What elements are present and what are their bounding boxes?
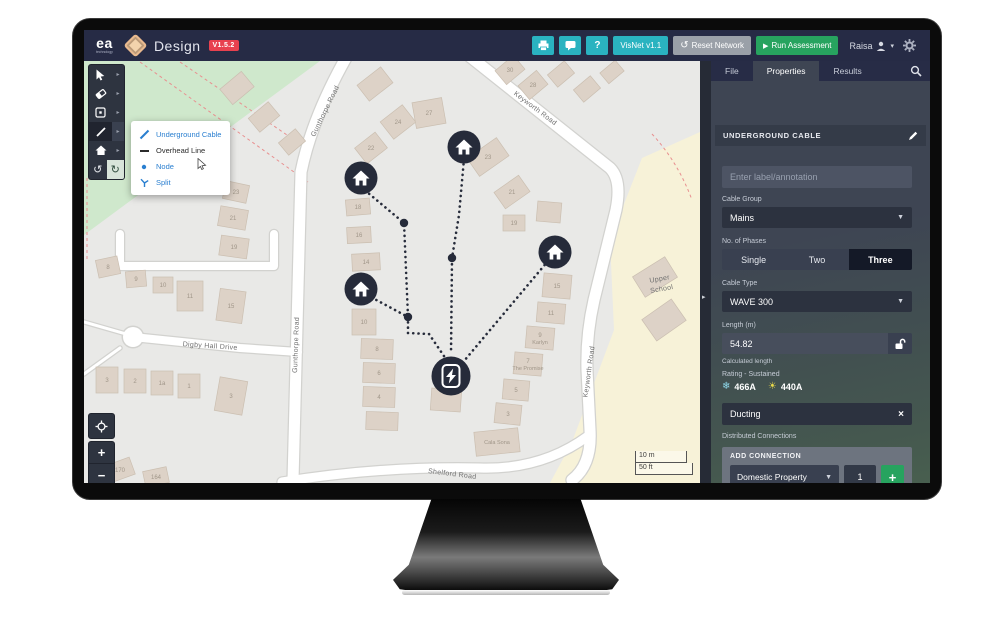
building: Cala Sona [474, 428, 520, 456]
app-topbar: ea technology Design V1.5.2 ? [84, 30, 930, 61]
building [536, 201, 562, 223]
building-number: 24 [395, 120, 402, 126]
zoom-control: + − [88, 441, 115, 483]
length-label: Length (m) [722, 322, 912, 329]
menu-item-underground-cable[interactable]: Underground Cable [131, 126, 230, 142]
building-footprint [600, 61, 624, 84]
plus-icon: + [889, 470, 897, 484]
building: 14 [352, 253, 381, 271]
junction-node[interactable] [404, 313, 412, 321]
redo-button[interactable]: ↻ [107, 160, 125, 179]
underground-cable-line[interactable] [459, 261, 548, 367]
print-button[interactable] [532, 36, 554, 55]
building [600, 61, 624, 84]
feedback-button[interactable] [559, 36, 581, 55]
building-number: 10 [361, 320, 368, 326]
printer-icon [538, 40, 549, 51]
properties-panel: FilePropertiesResults UNDERGROUND CABLE … [711, 61, 930, 483]
menu-item-split[interactable]: Split [131, 174, 230, 190]
property-tool[interactable]: ▸ [89, 141, 124, 160]
run-assessment-label: Run Assessment [771, 41, 831, 50]
building: 10 [352, 309, 376, 335]
ducting-value: Ducting [730, 409, 761, 419]
building: 11 [177, 281, 203, 311]
tab-properties[interactable]: Properties [753, 61, 820, 81]
person-icon [876, 41, 886, 51]
menu-item-label: Overhead Line [156, 146, 205, 155]
edit-pencil-icon[interactable] [908, 131, 918, 141]
building [366, 411, 399, 430]
remove-ducting-button[interactable]: × [898, 409, 904, 420]
undo-icon: ↺ [680, 40, 688, 51]
version-badge: V1.5.2 [209, 40, 239, 51]
phase-option-single[interactable]: Single [722, 249, 785, 270]
flyout-arrow-icon[interactable]: ▸ [112, 122, 124, 141]
building: 9 [125, 270, 146, 288]
tab-results[interactable]: Results [819, 61, 875, 81]
drawing-toolbar: ▸ ▸ ▸ ▸ ▸ ↺ ↻ [88, 64, 125, 180]
menu-item-overhead-line[interactable]: Overhead Line [131, 142, 230, 158]
building-footprint [573, 76, 600, 102]
chevron-down-icon: ▼ [897, 298, 904, 305]
building-number: 27 [426, 111, 433, 117]
flyout-arrow-icon[interactable]: ▸ [112, 84, 124, 103]
line-tool-active[interactable]: ▸ [89, 122, 124, 141]
screen: ea technology Design V1.5.2 ? [84, 30, 930, 483]
building-number: 19 [511, 221, 518, 227]
building-number: 170 [115, 468, 126, 474]
redo-icon: ↻ [111, 163, 120, 176]
road-casing [120, 234, 274, 266]
chevron-down-icon: ▾ [890, 42, 894, 50]
building: 3 [214, 377, 247, 415]
calculated-length-note: Calculated length [722, 358, 912, 365]
phases-label: No. of Phases [722, 238, 912, 245]
building-number: 22 [368, 146, 375, 152]
phases-segmented-control: SingleTwoThree [722, 249, 912, 270]
connection-type-select[interactable]: Domestic Property ▼ [730, 465, 839, 483]
building-number: 14 [363, 260, 370, 266]
rating-label: Rating - Sustained [722, 371, 912, 378]
building-number: 21 [509, 190, 516, 196]
length-lock-button[interactable] [888, 333, 912, 354]
building: 19 [219, 235, 250, 259]
building [357, 67, 393, 101]
building-footprint [547, 61, 574, 87]
scale-imperial: 50 ft [635, 463, 693, 475]
monitor-stand-base-highlight [402, 590, 610, 595]
ea-logo-text: ea [96, 36, 113, 50]
house-node[interactable] [539, 236, 572, 269]
building: 164 [143, 467, 170, 483]
zoom-in-button[interactable]: + [89, 442, 114, 464]
ea-logo: ea technology [96, 36, 113, 55]
menu-item-label: Underground Cable [156, 130, 221, 139]
cable-group-select[interactable]: Mains ▼ [722, 207, 912, 228]
road-casing [468, 61, 618, 480]
house-node[interactable] [345, 162, 378, 195]
label-annotation-input[interactable] [722, 166, 912, 188]
house-door [359, 181, 362, 186]
cable-type-select[interactable]: WAVE 300 ▼ [722, 291, 912, 312]
building-number: 23 [233, 190, 240, 196]
node-box-icon [89, 103, 112, 122]
add-connection-button[interactable]: + [881, 465, 904, 483]
building: 18 [345, 198, 370, 216]
reset-network-button[interactable]: ↺ Reset Network [673, 36, 751, 55]
building: 8 [95, 256, 120, 278]
settings-gear-icon[interactable] [903, 39, 916, 52]
product-title: Design [154, 38, 201, 54]
building: 21 [217, 206, 248, 231]
building: 5 [502, 379, 530, 401]
junction-node[interactable] [400, 219, 408, 227]
visnet-label: VisNet v1.1 [620, 41, 661, 50]
house-icon [89, 141, 112, 160]
diagonal-line-icon [139, 129, 150, 140]
building: 9Karlyn [525, 326, 555, 350]
cable-type-value: WAVE 300 [730, 297, 773, 307]
building: 22 [355, 132, 388, 164]
connection-qty-input[interactable] [844, 465, 876, 483]
building-number: 164 [151, 475, 162, 481]
building: 6 [363, 362, 396, 383]
building: 1a [151, 371, 173, 395]
ducting-tag: Ducting × [722, 403, 912, 425]
flyout-arrow-icon[interactable]: ▸ [112, 65, 124, 84]
chevron-down-icon: ▼ [825, 474, 832, 481]
junction-node[interactable] [448, 254, 456, 262]
section-title: UNDERGROUND CABLE [723, 131, 821, 140]
unlock-icon [894, 338, 906, 350]
building-number: 11 [548, 311, 555, 317]
menu-item-label: Node [156, 162, 174, 171]
cursor-icon [89, 65, 112, 84]
phase-option-two[interactable]: Two [785, 249, 848, 270]
scale-metric: 10 m [635, 451, 687, 463]
panel-collapse-strip[interactable]: ▸ [700, 61, 711, 483]
building: 21 [494, 175, 530, 209]
user-menu[interactable]: Raisa ▾ [849, 41, 894, 51]
building: 11 [536, 302, 566, 324]
cable-group-value: Mains [730, 213, 754, 223]
building: 1 [178, 374, 200, 398]
building-number: 18 [355, 205, 362, 211]
building: 4 [363, 386, 396, 407]
transformer-node[interactable] [432, 357, 471, 396]
house-door [359, 292, 362, 297]
user-name: Raisa [849, 41, 872, 51]
flyout-arrow-icon[interactable]: ▸ [112, 141, 124, 160]
locate-icon [95, 420, 108, 433]
rating-cold-value: 466A [734, 382, 756, 392]
locate-button[interactable] [88, 413, 115, 439]
building: 27 [412, 98, 446, 129]
section-header: UNDERGROUND CABLE [715, 125, 926, 146]
building: 2 [124, 369, 146, 393]
rating-warm-value: 440A [781, 382, 803, 392]
building-number: 30 [507, 68, 514, 74]
line-tool-context-menu: Underground CableOverhead LineNodeSplit [131, 121, 230, 195]
run-assessment-button[interactable]: ▶ Run Assessment [756, 36, 838, 55]
reset-network-label: Reset Network [692, 41, 744, 50]
node-tool[interactable]: ▸ [89, 103, 124, 122]
building-number: 15 [228, 304, 235, 310]
building-number: 1a [159, 381, 166, 387]
building-number: 11 [187, 294, 194, 300]
house-node[interactable] [345, 273, 378, 306]
visnet-button[interactable]: VisNet v1.1 [613, 36, 668, 55]
flyout-arrow-icon[interactable]: ▸ [112, 103, 124, 122]
building [547, 61, 574, 87]
horizontal-line-icon [139, 145, 150, 156]
underground-cable-line[interactable] [408, 317, 448, 362]
building: 7The Promise [512, 352, 545, 377]
building: 15 [216, 288, 246, 323]
building-number: 15 [554, 284, 561, 290]
zoom-out-button[interactable]: − [89, 464, 114, 483]
line-icon [89, 122, 112, 141]
building-footprint [357, 67, 393, 101]
roundabout [123, 327, 143, 347]
chevron-down-icon: ▼ [897, 214, 904, 221]
length-input[interactable] [722, 333, 888, 354]
building: 10 [153, 277, 173, 293]
question-icon: ? [594, 40, 600, 51]
building-number: 19 [231, 245, 238, 251]
building-footprint [536, 201, 562, 223]
building-name: Karlyn [532, 340, 548, 346]
design-diamond-icon [123, 33, 147, 57]
search-icon[interactable] [910, 65, 922, 77]
snowflake-icon: ❄ [722, 381, 730, 392]
house-node[interactable] [448, 131, 481, 164]
monitor-stand [393, 499, 619, 593]
select-tool[interactable]: ▸ [89, 65, 124, 84]
house-door [553, 255, 556, 260]
menu-item-node[interactable]: Node [131, 158, 230, 174]
menu-item-label: Split [156, 178, 171, 187]
play-icon: ▶ [763, 42, 768, 50]
dot-icon [139, 161, 150, 172]
phase-option-three[interactable]: Three [849, 249, 912, 270]
sun-icon: ☀ [768, 381, 777, 392]
road-label: Keyworth Road [512, 90, 558, 127]
map-scale: 10 m 50 ft [635, 451, 693, 475]
eraser-tool[interactable]: ▸ [89, 84, 124, 103]
building-name: The Promise [512, 366, 543, 372]
panel-tabs: FilePropertiesResults [711, 61, 930, 81]
building-number: 21 [230, 216, 237, 222]
chat-icon [565, 40, 576, 51]
mouse-cursor-icon [197, 158, 207, 170]
building: 15 [542, 273, 572, 299]
eraser-icon [89, 84, 112, 103]
rating-values: ❄ 466A ☀ 440A [722, 381, 912, 392]
building-number: 10 [160, 283, 167, 289]
house-door [462, 150, 465, 155]
building-name: Cala Sona [484, 440, 511, 446]
ea-logo-subtext: technology [96, 51, 113, 55]
undo-icon: ↺ [93, 163, 102, 176]
tab-file[interactable]: File [711, 61, 753, 81]
building-footprint [366, 411, 399, 430]
building-number: 23 [485, 155, 492, 161]
help-button[interactable]: ? [586, 36, 608, 55]
building: 24 [380, 105, 416, 140]
building: 3 [494, 403, 522, 426]
building-number: 16 [356, 233, 363, 239]
building: 8 [361, 338, 394, 359]
split-icon [139, 177, 150, 188]
building-number: 28 [530, 83, 537, 89]
building: 19 [503, 215, 525, 231]
chevron-right-icon: ▸ [702, 293, 706, 301]
building: 3 [96, 367, 118, 393]
connection-type-value: Domestic Property [737, 472, 807, 482]
distributed-connections-label: Distributed Connections [722, 433, 912, 440]
building [573, 76, 600, 102]
add-connection-title: ADD CONNECTION [730, 453, 904, 460]
cable-type-label: Cable Type [722, 280, 912, 287]
building: 16 [347, 226, 372, 243]
undo-button[interactable]: ↺ [89, 160, 107, 179]
cable-group-label: Cable Group [722, 196, 912, 203]
add-connection-box: ADD CONNECTION Domestic Property ▼ + [722, 447, 912, 483]
